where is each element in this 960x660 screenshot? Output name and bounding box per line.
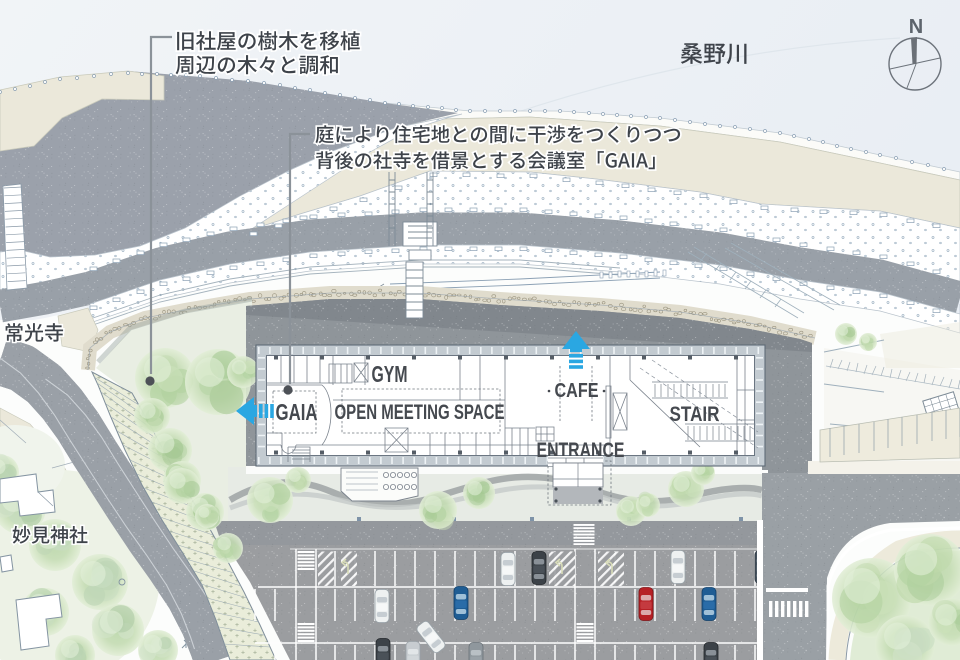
svg-text:STAIR: STAIR [670, 402, 720, 426]
svg-text:GAIA: GAIA [276, 399, 318, 425]
svg-text:GYM: GYM [372, 361, 408, 387]
svg-text:OPEN MEETING SPACE: OPEN MEETING SPACE [335, 400, 505, 424]
svg-text:CAFE: CAFE [555, 380, 599, 402]
svg-text:N: N [909, 16, 923, 38]
